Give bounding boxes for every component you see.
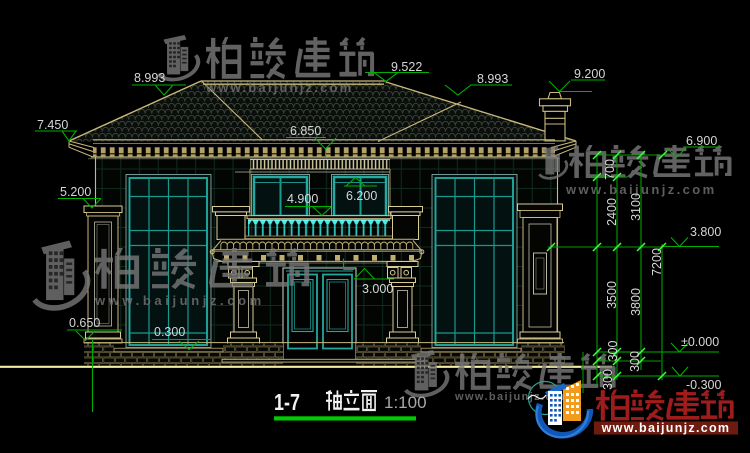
- svg-text:www.baijunjz.com: www.baijunjz.com: [94, 293, 265, 308]
- svg-text:700: 700: [603, 159, 617, 180]
- svg-text:www.baijunjz.com: www.baijunjz.com: [205, 80, 353, 95]
- svg-text:1:100: 1:100: [384, 393, 427, 412]
- svg-text:3.000: 3.000: [362, 282, 393, 296]
- svg-text:2400: 2400: [605, 198, 619, 226]
- svg-text:3100: 3100: [629, 193, 643, 221]
- svg-text:1-7: 1-7: [274, 389, 300, 415]
- svg-text:±0.000: ±0.000: [681, 335, 719, 349]
- svg-text:9.522: 9.522: [391, 60, 422, 74]
- svg-text:-0.300: -0.300: [686, 378, 721, 392]
- svg-text:5.200: 5.200: [60, 185, 91, 199]
- svg-text:6.850: 6.850: [290, 124, 321, 138]
- svg-text:7.450: 7.450: [37, 118, 68, 132]
- svg-text:www.baijunjz.com: www.baijunjz.com: [601, 421, 731, 435]
- svg-text:6.200: 6.200: [346, 189, 377, 203]
- svg-text:6.900: 6.900: [686, 134, 717, 148]
- svg-text:3500: 3500: [605, 281, 619, 309]
- svg-text:300: 300: [606, 341, 620, 362]
- svg-text:8.993: 8.993: [134, 71, 165, 85]
- svg-text:9.200: 9.200: [574, 67, 605, 81]
- svg-text:0.300: 0.300: [154, 325, 185, 339]
- svg-text:8.993: 8.993: [477, 72, 508, 86]
- svg-text:3.800: 3.800: [690, 225, 721, 239]
- svg-text:0.650: 0.650: [69, 316, 100, 330]
- svg-text:3800: 3800: [629, 288, 643, 316]
- svg-text:4.900: 4.900: [287, 192, 318, 206]
- svg-text:300: 300: [601, 369, 615, 390]
- svg-text:300: 300: [628, 351, 642, 372]
- svg-text:7200: 7200: [650, 248, 664, 276]
